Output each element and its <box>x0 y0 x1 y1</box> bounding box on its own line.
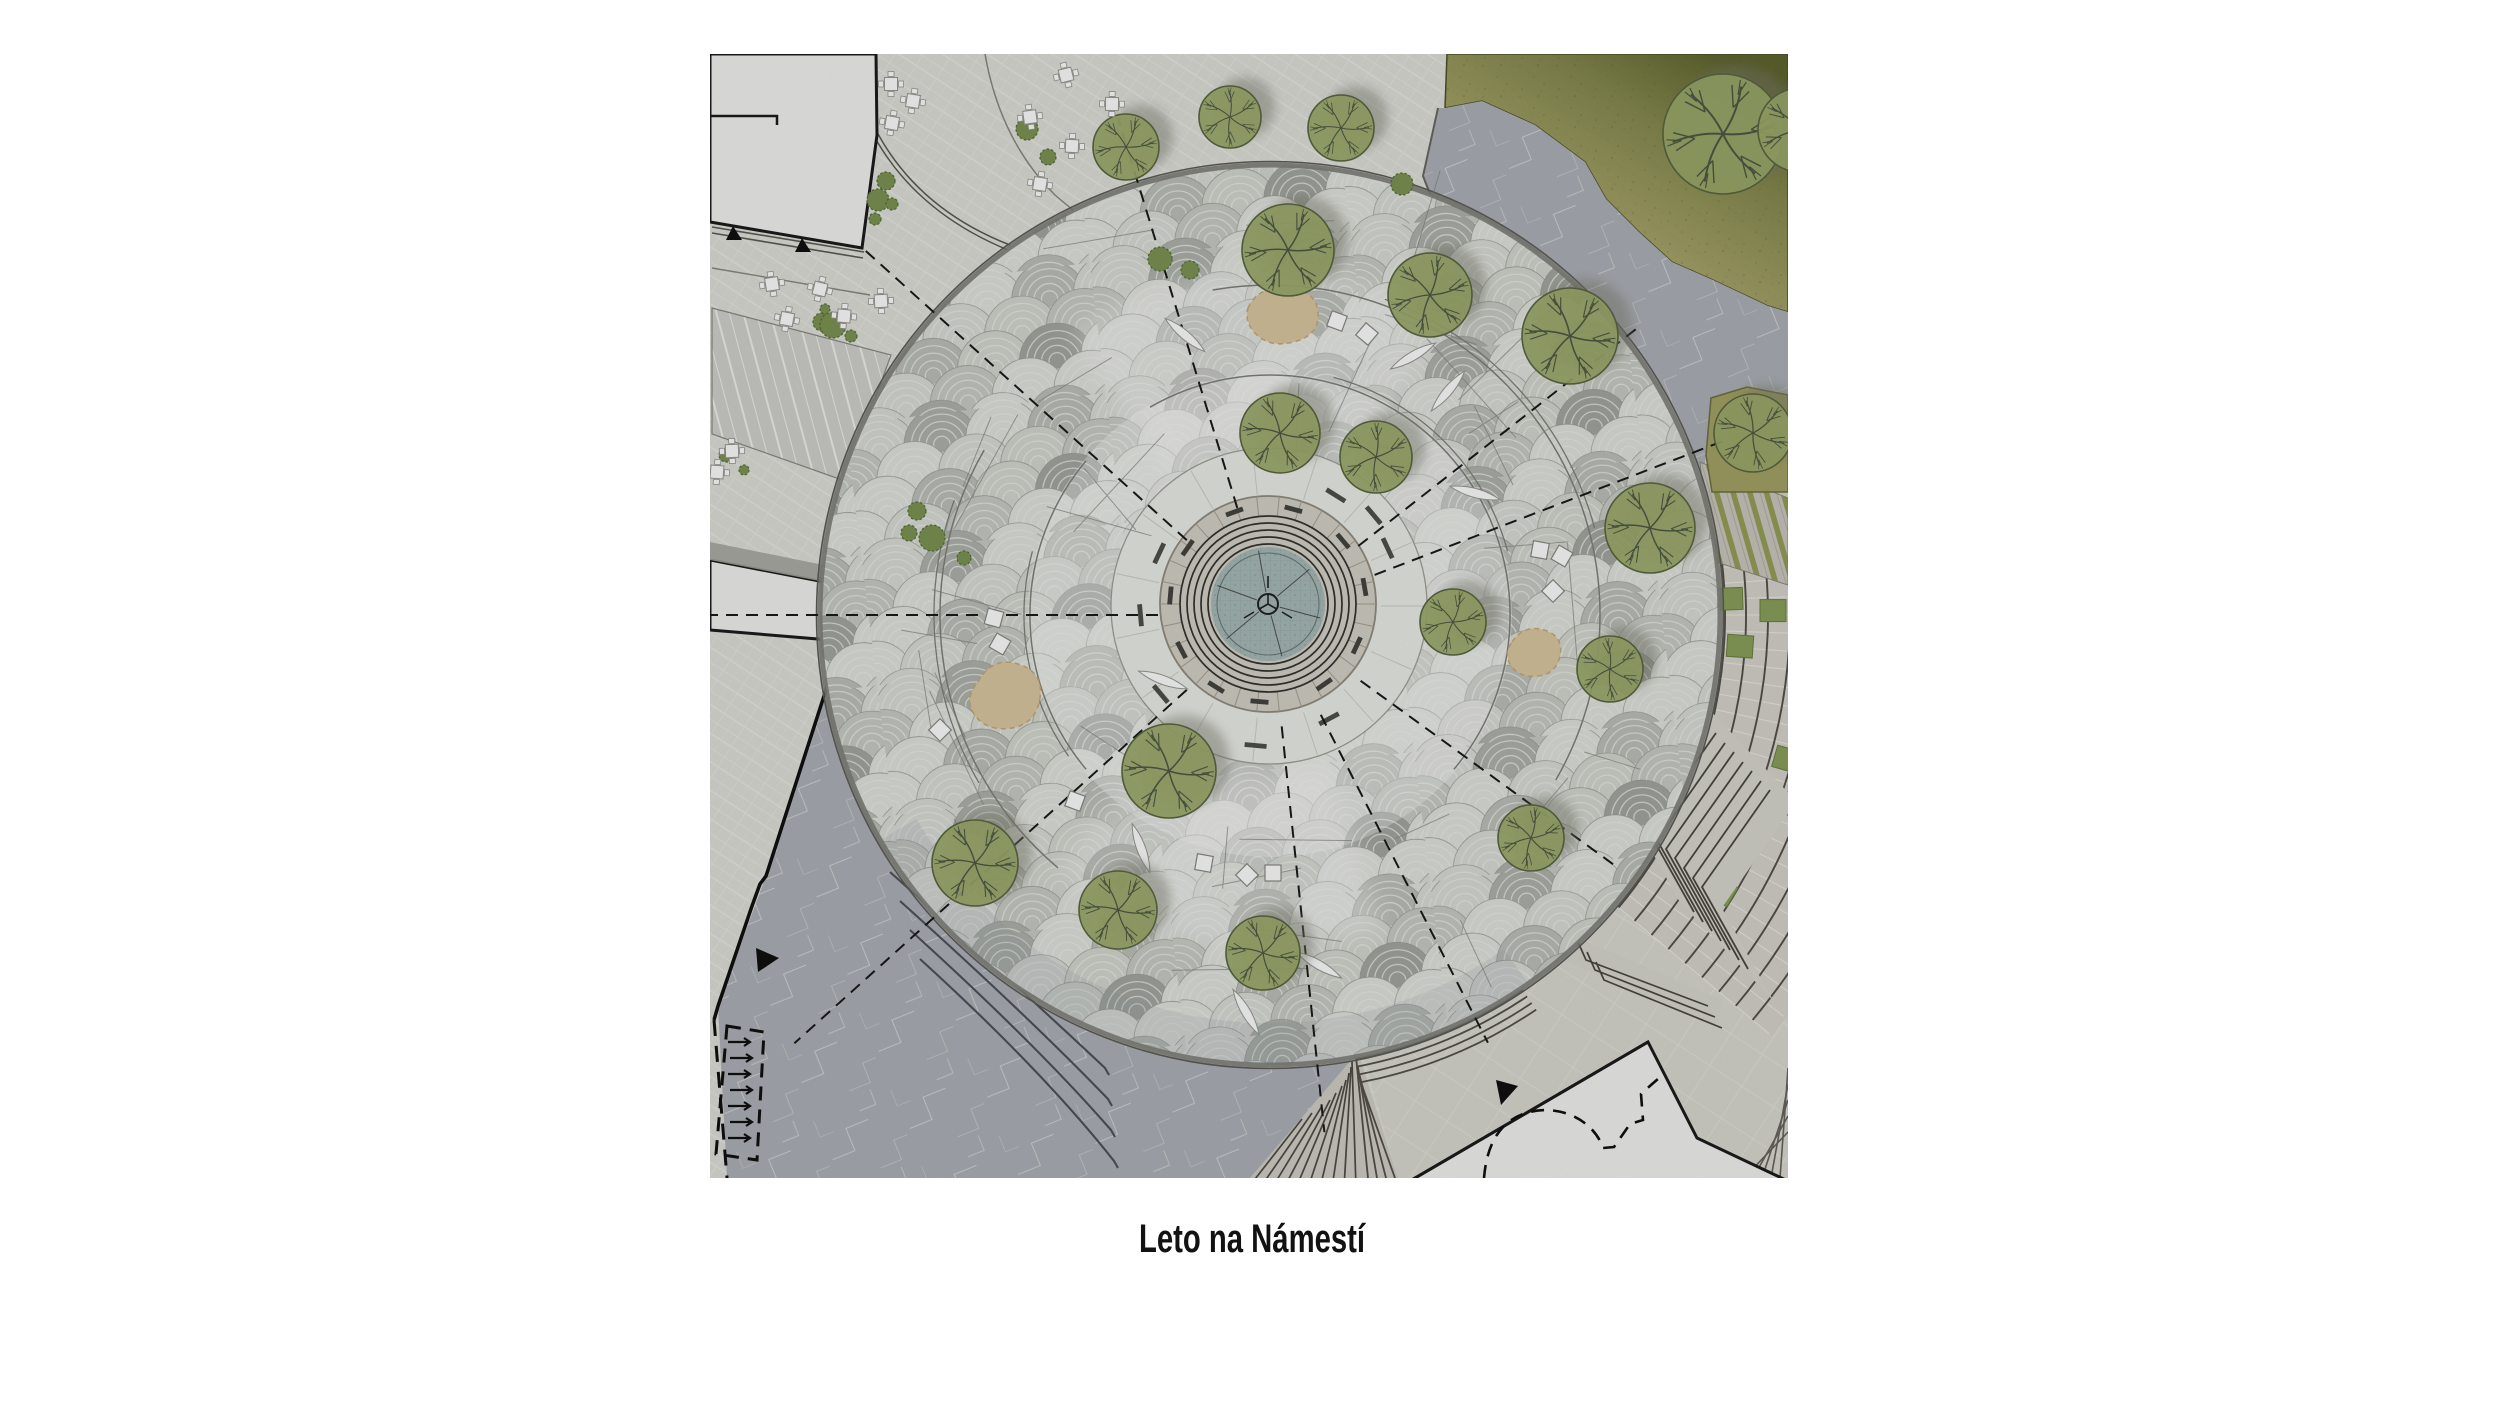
svg-text:Leto na Námestí: Leto na Námestí <box>1139 1217 1366 1261</box>
